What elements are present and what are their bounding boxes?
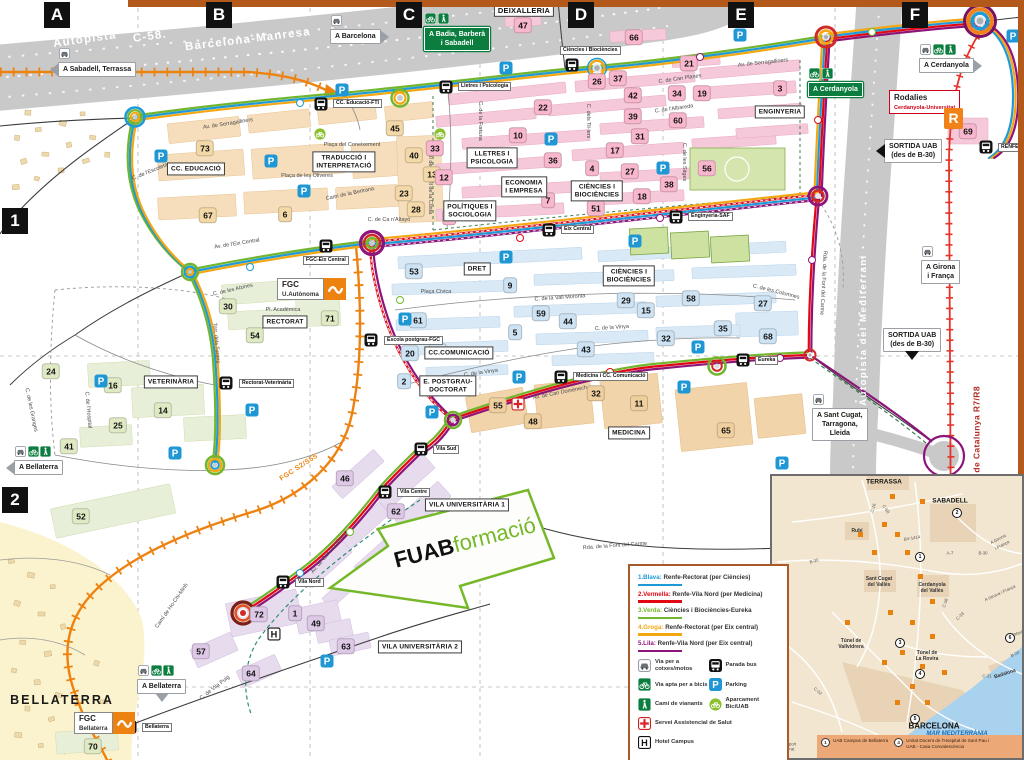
fgc-bellaterra-station: FGC Bellaterra <box>74 712 135 734</box>
fgc-title: FGC <box>282 280 299 289</box>
fgc-uautonoma-station: FGC U.Autònoma <box>277 278 346 300</box>
legend-routes: 1.Blava: Renfe-Rectorat (per Ciències)2.… <box>638 574 779 652</box>
inset-road-label: C-33 <box>955 611 965 621</box>
inset-place-label: Badalona <box>993 668 1016 681</box>
inset-road-label: BV-1414 <box>903 534 920 542</box>
inset-place-label: A Girona i França <box>984 584 1016 603</box>
inset-legend-entry: 1UAB Campus de Bellaterra <box>821 738 888 755</box>
legend-panel: 1.Blava: Renfe-Rectorat (per Ciències)2.… <box>628 564 789 760</box>
map-border-right <box>1018 0 1024 474</box>
inset-road-label: B-20 <box>1010 650 1020 658</box>
legend-route: 2.Vermella: Renfe-Vila Nord (per Medicin… <box>638 591 779 603</box>
fgc-subtitle: U.Autònoma <box>282 291 319 298</box>
inset-place-label: La Rovira <box>916 656 939 662</box>
inset-place-label: SABADELL <box>932 498 967 505</box>
inset-site-marker-6: 6 <box>1005 633 1015 643</box>
region-inset-map: TERRASSASABADELLRubíSant Cugatdel Vallès… <box>770 474 1024 760</box>
rodalies-title: Rodalies <box>894 93 927 102</box>
inset-place-label: TERRASSA <box>866 479 902 486</box>
inset-road-label: A-7 <box>947 551 954 556</box>
inset-site-marker-3: 3 <box>895 638 905 648</box>
inset-site-marker-2: 2 <box>952 508 962 518</box>
map-border-top <box>128 0 1024 7</box>
legend-route: 4.Groga: Renfe-Rectorat (per Eix central… <box>638 624 779 636</box>
inset-place-label: del Vallès <box>921 588 944 594</box>
inset-road-label: C-32 <box>813 686 823 696</box>
legend-route: 3.Verda: Ciències i Biociències-Eureka <box>638 607 779 619</box>
inset-legend-strip: 1UAB Campus de Bellaterra4Unitat Docent … <box>817 735 1022 758</box>
uab-campus-map: 7345401323286763312847662221263742341933… <box>0 0 1024 760</box>
inset-site-marker-5: 5 <box>910 714 920 724</box>
svg-text:H: H <box>641 738 648 748</box>
legend-route: 1.Blava: Renfe-Rectorat (per Ciències) <box>638 574 779 586</box>
legend-symbol-car: Via per a cotxes/motos <box>638 659 709 672</box>
inset-labels: TERRASSASABADELLRubíSant Cugatdel Vallès… <box>772 476 1022 758</box>
inset-place-label: Rubí <box>851 528 862 534</box>
inset-road-label: C-58 <box>941 598 949 608</box>
inset-site-marker-1: 1 <box>915 552 925 562</box>
inset-place-label: del Vallès <box>868 582 891 588</box>
fgc-subtitle: Bellaterra <box>79 725 108 732</box>
inset-road-label: C-16 <box>869 503 877 513</box>
legend-symbol-health: Servei Assistencial de Salut <box>638 717 779 730</box>
legend-symbol-biciuab: Aparcament BiciUAB <box>709 697 780 710</box>
inset-place-label: Vallvidrera <box>838 644 863 650</box>
inset-road-label: B-30 <box>809 557 819 564</box>
legend-symbol-hotel: HHotel Campus <box>638 736 779 749</box>
inset-road-label: C-31 <box>982 674 991 679</box>
inset-site-marker-4: 4 <box>915 669 925 679</box>
fgc-title: FGC <box>79 714 96 723</box>
inset-legend-entry: 4Unitat Docent de l'Hospital de Sant Pau… <box>894 738 998 755</box>
fgc-logo-icon <box>113 712 135 734</box>
legend-symbol-parking: PParking <box>709 678 780 691</box>
legend-symbol-walk: Camí de vianants <box>638 697 709 710</box>
renfe-logo: R <box>944 108 963 129</box>
svg-text:P: P <box>712 681 719 692</box>
legend-route: 5.Lila: Renfe-Vila Nord (per Eix central… <box>638 640 779 652</box>
inset-road-label: B-30 <box>978 551 987 556</box>
legend-symbols: Via per a cotxes/motosParada busVia apta… <box>638 659 779 755</box>
fgc-logo-icon <box>324 278 346 300</box>
inset-road-label: C-58 <box>881 504 890 515</box>
legend-symbol-bus: Parada bus <box>709 659 780 672</box>
legend-symbol-bike: Via apta per a bicis <box>638 678 709 691</box>
